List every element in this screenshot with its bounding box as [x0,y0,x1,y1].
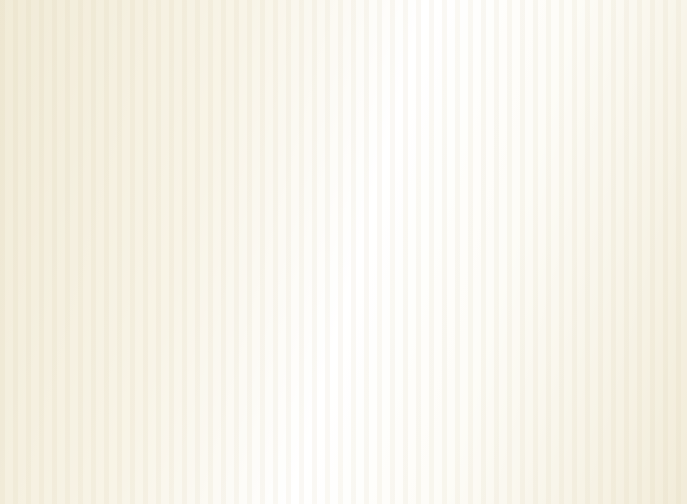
apartment-floorplan-3d-render [0,0,687,504]
isometric-scene [0,0,687,504]
